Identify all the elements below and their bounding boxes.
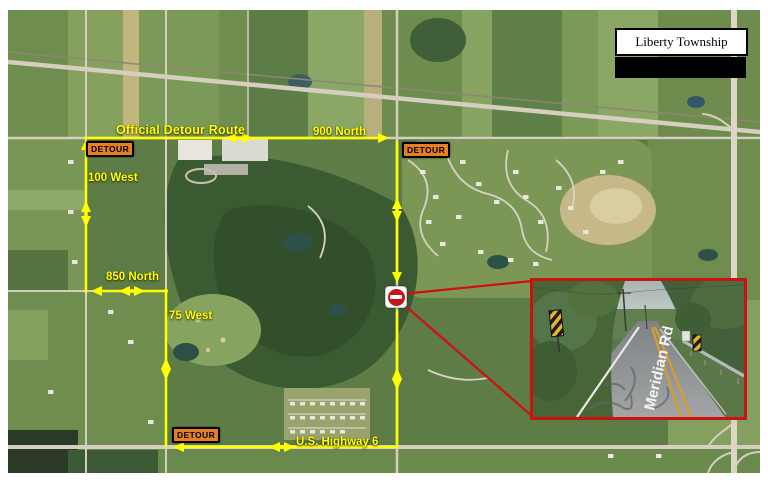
- road-label-75-west: 75 West: [169, 310, 212, 322]
- detour-map-figure: Official Detour Route 900 North 100 West…: [0, 0, 768, 488]
- aerial-map: Official Detour Route 900 North 100 West…: [8, 10, 760, 473]
- do-not-enter-bar: [390, 295, 402, 299]
- street-view-photo: Meridian Rd: [533, 281, 744, 417]
- road-closed-icon: [385, 286, 407, 308]
- township-name-label: Liberty Township: [615, 28, 748, 56]
- detour-sign-south: DETOUR: [172, 427, 220, 443]
- detour-route-double-arrows: [86, 138, 397, 447]
- road-label-us-highway-6: U.S. Highway 6: [296, 436, 378, 448]
- street-view-inset: Meridian Rd: [530, 278, 747, 420]
- hazard-sign-right-icon: [693, 335, 701, 351]
- township-black-bar: [615, 57, 746, 78]
- detour-sign-northwest: DETOUR: [86, 141, 134, 157]
- official-detour-route-label: Official Detour Route: [116, 123, 245, 137]
- road-label-850-north: 850 North: [106, 271, 159, 283]
- road-label-900-north: 900 North: [313, 126, 366, 138]
- township-title-box: Liberty Township: [615, 28, 748, 78]
- road-label-100-west: 100 West: [88, 172, 138, 184]
- detour-sign-northeast: DETOUR: [402, 142, 450, 158]
- inset-callout-lines: [402, 281, 532, 416]
